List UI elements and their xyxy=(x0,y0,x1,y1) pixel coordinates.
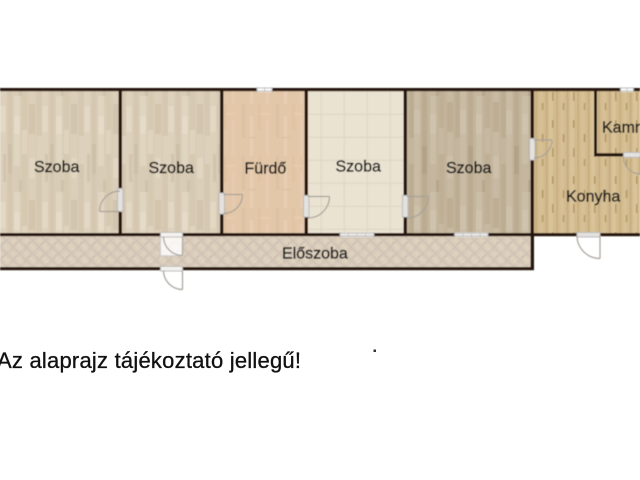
svg-text:Konyha: Konyha xyxy=(566,189,620,206)
svg-text:Előszoba: Előszoba xyxy=(282,246,348,263)
svg-text:Szoba: Szoba xyxy=(149,160,194,177)
svg-text:Szoba: Szoba xyxy=(446,160,491,177)
svg-text:Szoba: Szoba xyxy=(336,159,381,176)
svg-text:Fürdő: Fürdő xyxy=(245,161,287,178)
svg-text:Szoba: Szoba xyxy=(34,159,79,176)
svg-text:Az alaprajz tájékoztató jelleg: Az alaprajz tájékoztató jellegű! xyxy=(0,348,301,373)
svg-text:Kamra: Kamra xyxy=(602,120,640,137)
